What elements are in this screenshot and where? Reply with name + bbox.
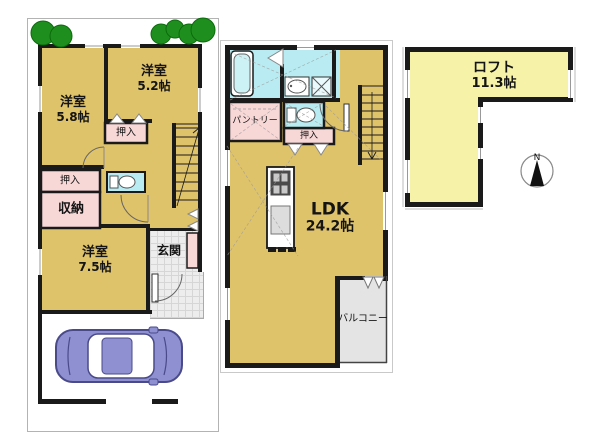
- room-area: 5.8帖: [56, 111, 89, 124]
- pantry-label: パントリー: [232, 116, 277, 126]
- floor1-toilet: [107, 172, 145, 192]
- loft-label: ロフト 11.3帖: [471, 61, 516, 91]
- washbasin: [285, 77, 309, 96]
- room-name: 洋室: [78, 246, 111, 261]
- bedroom-75-label: 洋室 7.5帖: [78, 246, 111, 274]
- room-area: 11.3帖: [471, 77, 516, 92]
- floor-plan: N 洋室 5.8帖 洋室 5.2帖 洋室 7.5帖 押入 押入 収納 玄: [0, 0, 600, 447]
- bedroom-52-label: 洋室 5.2帖: [137, 65, 170, 93]
- room-name: ロフト: [471, 61, 516, 77]
- bedroom-58-label: 洋室 5.8帖: [56, 96, 89, 124]
- floor2-stairs: [362, 86, 383, 159]
- ldk-label: LDK 24.2帖: [306, 201, 355, 236]
- room-name: 洋室: [137, 65, 170, 80]
- closet-2f-label: 押入: [300, 131, 318, 141]
- closet-upper-label: 押入: [116, 127, 136, 138]
- room-area: 5.2帖: [137, 80, 170, 93]
- storage-label: 収納: [58, 203, 84, 218]
- tree-icons: [31, 18, 215, 47]
- bath-door-mark: [268, 49, 283, 67]
- compass-north-label: N: [534, 153, 541, 163]
- entrance-label: 玄関: [157, 244, 181, 257]
- floor2-closet-marks: [288, 144, 328, 155]
- floor1-windows: [38, 44, 202, 275]
- closet-lower-label: 押入: [60, 175, 80, 186]
- balcony-label: バルコニー: [338, 313, 388, 324]
- room-area: 7.5帖: [78, 261, 111, 274]
- room-name: 洋室: [56, 96, 89, 111]
- bathtub: [231, 51, 253, 96]
- compass-icon: N: [521, 153, 553, 187]
- room-area: 24.2帖: [306, 220, 355, 236]
- kitchen-island: [267, 167, 296, 252]
- floor1-stairs: [176, 124, 199, 206]
- washing-machine-pan: [312, 77, 331, 96]
- room-name: LDK: [306, 201, 355, 220]
- car-icon: [56, 327, 182, 385]
